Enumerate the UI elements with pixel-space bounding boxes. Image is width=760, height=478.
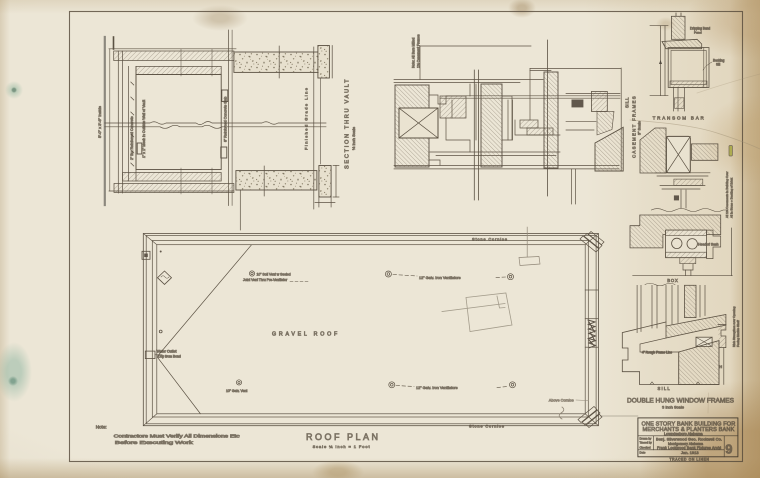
svg-text:5'-0" x 3'-6" Inside: 5'-0" x 3'-6" Inside <box>97 105 102 138</box>
svg-text:Joint Vent Thru Pre-Ventilator: Joint Vent Thru Pre-Ventilator <box>243 278 288 282</box>
svg-text:TRACED ON LINEN: TRACED ON LINEN <box>670 458 710 462</box>
svg-text:Facing Marble Shelf: Facing Marble Shelf <box>736 320 740 347</box>
svg-text:Contractors Must Verify All Di: Contractors Must Verify All Dimensions E… <box>114 433 241 438</box>
svg-text:Above Cornice: Above Cornice <box>549 398 574 402</box>
svg-text:Scale ¼ Inch = 1 Foot: Scale ¼ Inch = 1 Foot <box>313 444 371 449</box>
svg-text:ROOF PLAN: ROOF PLAN <box>306 432 380 442</box>
svg-text:1" x 1" Mesh in Outside Wall o: 1" x 1" Mesh in Outside Wall of Vault <box>142 100 146 158</box>
svg-text:SILL: SILL <box>625 97 630 108</box>
svg-text:Water Outlet: Water Outlet <box>157 350 177 354</box>
svg-text:9: 9 <box>725 442 732 457</box>
svg-text:Lowndesboro Alabama: Lowndesboro Alabama <box>664 432 704 436</box>
svg-text:Stone Cornice: Stone Cornice <box>472 237 508 242</box>
svg-text:Traced by: Traced by <box>640 441 653 445</box>
svg-text:Checked: Checked <box>640 445 651 449</box>
svg-text:8" Reinforced Concrete Slab: 8" Reinforced Concrete Slab <box>224 97 228 142</box>
svg-text:SILL: SILL <box>658 386 671 391</box>
svg-text:Stone Cornice: Stone Cornice <box>469 423 505 428</box>
svg-text:DOUBLE HUNG WINDOW FRAMES: DOUBLE HUNG WINDOW FRAMES <box>627 398 734 405</box>
svg-text:12" Galv. Iron Ventilators: 12" Galv. Iron Ventilators <box>416 386 458 390</box>
svg-text:Panel: Panel <box>694 30 702 34</box>
svg-text:Sill: Sill <box>716 62 721 66</box>
svg-text:2" Bu. Reinforced Concrete: 2" Bu. Reinforced Concrete <box>130 116 134 160</box>
svg-text:Drip from Bond: Drip from Bond <box>158 355 181 359</box>
svg-text:4" Rough Frame Line: 4" Rough Frame Line <box>642 351 672 355</box>
svg-text:Note: All Bars Milled: Note: All Bars Milled <box>412 38 416 68</box>
svg-text:BOX: BOX <box>667 278 678 283</box>
svg-text:Jan. 1913: Jan. 1913 <box>681 450 699 455</box>
svg-text:12" Galv. Iron Ventilators: 12" Galv. Iron Ventilators <box>419 276 461 280</box>
svg-text:10" Galv. Vent: 10" Galv. Vent <box>226 389 247 393</box>
svg-text:Date: Date <box>640 450 646 454</box>
svg-text:Head of Sash: Head of Sash <box>698 242 719 246</box>
svg-text:Note:: Note: <box>96 425 107 430</box>
svg-text:3 Inch Scale: 3 Inch Scale <box>662 405 685 410</box>
svg-text:SECTION THRU VAULT: SECTION THRU VAULT <box>345 79 351 169</box>
svg-text:All in Stone + Backing of Bric: All in Stone + Backing of Brick <box>730 177 734 218</box>
svg-text:Finished Grade Line: Finished Grade Line <box>304 87 309 150</box>
svg-text:TRANSOM BAR: TRANSOM BAR <box>653 115 705 120</box>
svg-text:H: H <box>720 365 723 369</box>
svg-text:GRAVEL ROOF: GRAVEL ROOF <box>272 332 340 338</box>
svg-text:All 1¾ Casements in Building O: All 1¾ Casements in Building Over <box>725 172 729 218</box>
svg-text:10" Soil Vent w Sealed: 10" Soil Vent w Sealed <box>257 272 291 276</box>
svg-text:3" Scale: 3" Scale <box>638 121 642 135</box>
svg-text:½ Inch Scale: ½ Inch Scale <box>351 126 356 150</box>
svg-text:Before Executing Work: Before Executing Work <box>115 440 194 445</box>
svg-text:CASEMENT FRAMES: CASEMENT FRAMES <box>632 96 637 158</box>
